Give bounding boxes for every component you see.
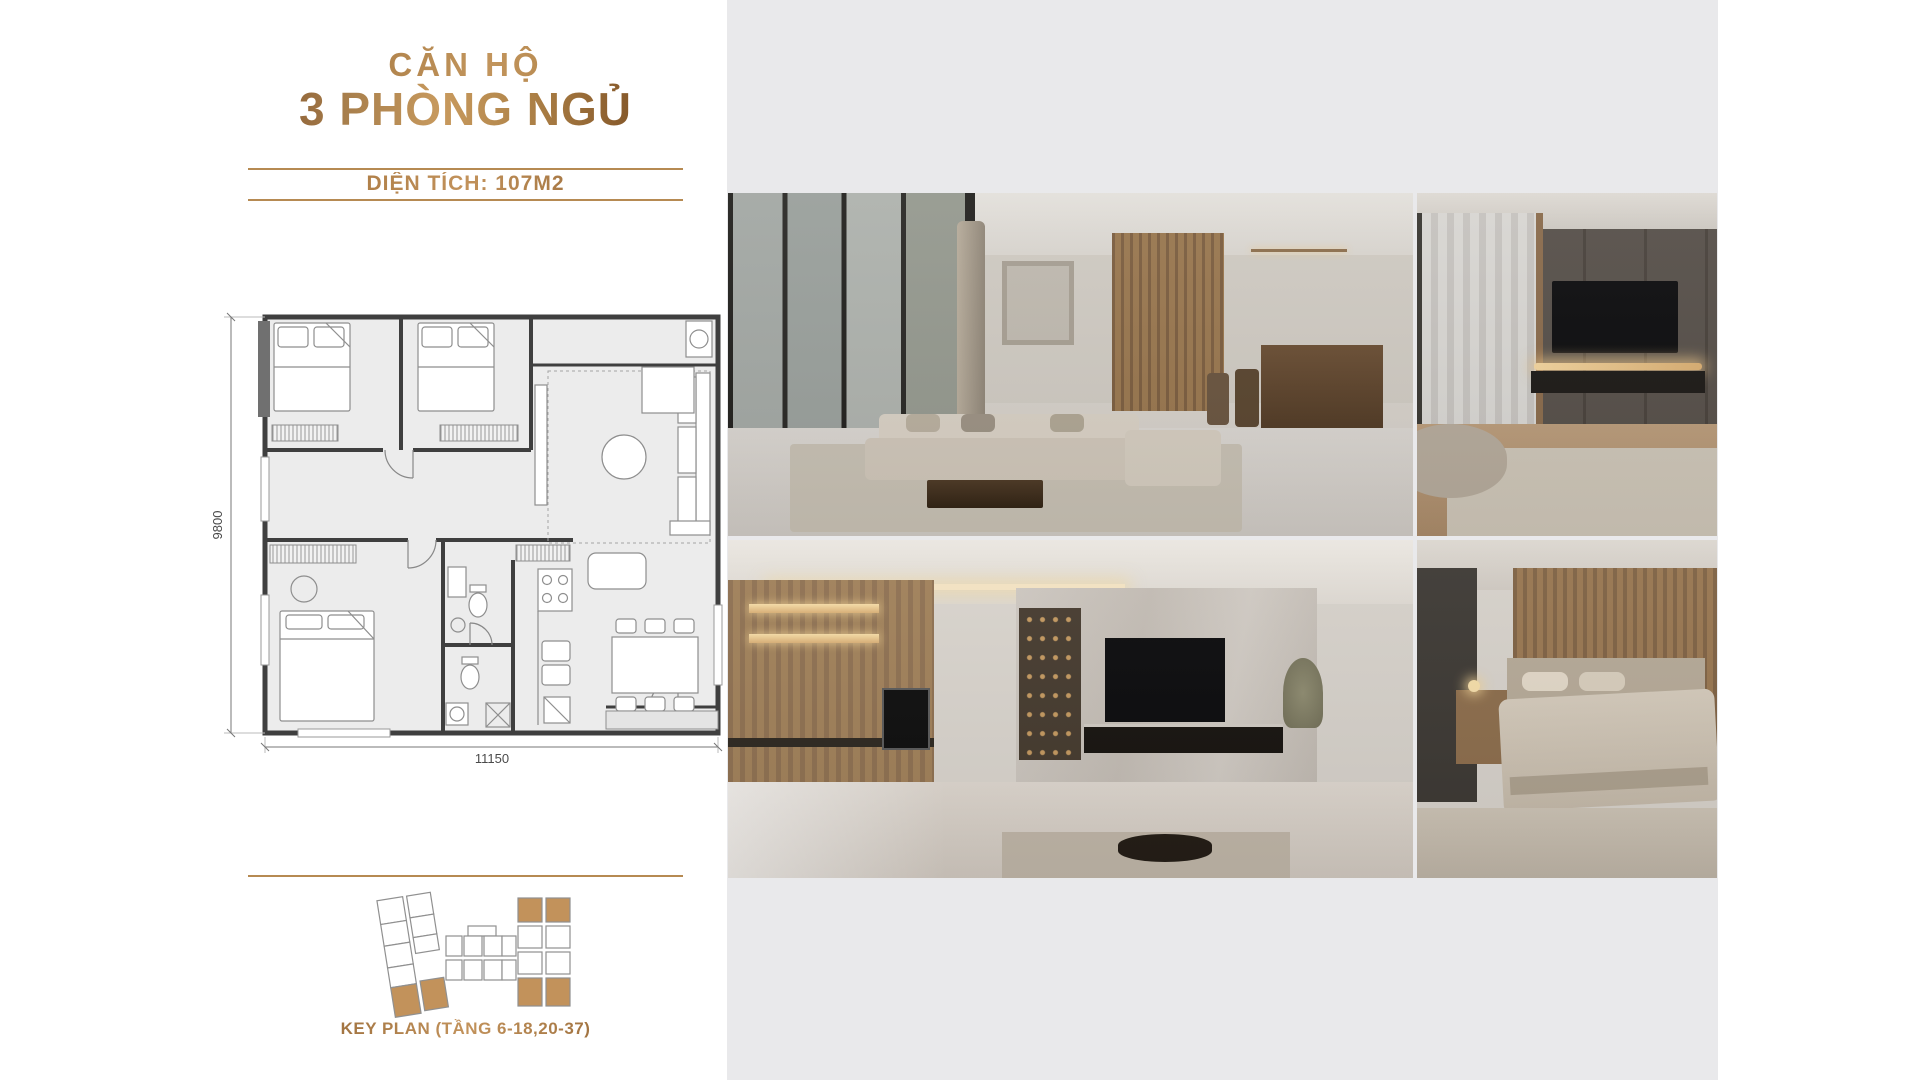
kitchen-lit-shelf <box>749 634 879 643</box>
bedroom-dresser <box>1456 690 1510 764</box>
living-dining-chair <box>1235 369 1259 427</box>
kitchen-ceiling <box>728 540 1413 604</box>
keyplan-caption: KEY PLAN (TẦNG 6-18,20-37) <box>248 1019 683 1039</box>
living-wall-art <box>1002 261 1074 345</box>
bedroom-headboard <box>1507 658 1705 700</box>
keyplan-right-wing <box>518 898 570 1006</box>
keyplan-left-wing <box>377 892 449 1017</box>
kitchen-cabinets <box>728 580 934 784</box>
living-ceiling <box>728 193 1413 255</box>
photo-living-room <box>728 193 1413 536</box>
floor-plan-drawing: 9800 11150 <box>208 305 723 767</box>
area-label: DIỆN TÍCH: 107M2 <box>248 172 683 196</box>
living-floor <box>728 428 1413 536</box>
living-sofa-pillow <box>1050 414 1084 432</box>
living-back-wall <box>975 233 1413 403</box>
kitchen-rug <box>1002 832 1290 878</box>
bedroom-wood-slat-wall <box>1513 568 1717 754</box>
divider-under-area <box>248 199 683 201</box>
kitchen-tv <box>1105 638 1225 722</box>
lounge-ceiling <box>1417 193 1717 229</box>
kitchen-plant <box>1283 658 1323 728</box>
living-rug <box>790 444 1242 532</box>
living-sofa-pillow <box>906 414 940 432</box>
bedroom-duvet <box>1498 688 1717 811</box>
kitchen-floor-reflection <box>728 782 947 878</box>
living-wood-slat-panel <box>1112 233 1224 411</box>
lounge-shelf-light <box>1534 363 1702 370</box>
kitchen-oven <box>882 688 930 750</box>
kitchen-marble-tv-wall <box>1016 588 1317 790</box>
photo-bedroom <box>1417 540 1717 878</box>
kitchen-low-console <box>1084 724 1283 753</box>
page-title-line2: 3 PHÒNG NGỦ <box>228 82 703 136</box>
lounge-sheer-curtain <box>1417 213 1543 437</box>
lounge-panel-wall <box>1525 211 1717 458</box>
lounge-ottoman <box>1417 424 1507 498</box>
kitchen-cove-light <box>769 584 1125 590</box>
photo-tv-lounge <box>1417 193 1717 536</box>
keyplan-center-bar <box>446 926 516 980</box>
kitchen-coffee-table <box>1118 834 1212 862</box>
bedroom-ceiling <box>1417 540 1717 590</box>
kitchen-display-bottles <box>1023 612 1078 756</box>
living-curtain <box>957 221 985 473</box>
living-dining-chair <box>1207 373 1229 425</box>
living-kitchen-island <box>1261 345 1383 437</box>
living-sofa-pillow <box>961 414 995 432</box>
kitchen-counter <box>728 738 934 747</box>
bedroom-pillow <box>1522 672 1568 691</box>
kitchen-display-cabinet <box>1019 608 1081 760</box>
bedroom-wardrobe-mirror <box>1417 568 1477 802</box>
plan-height-dimension: 9800 <box>210 511 225 540</box>
lounge-wood-floor <box>1417 424 1717 536</box>
bedroom-throw-blanket <box>1510 767 1709 795</box>
living-coffee-table <box>927 480 1043 508</box>
bedroom-lamp <box>1468 680 1480 692</box>
kitchen-hallway <box>934 604 1016 786</box>
kitchen-floor <box>728 782 1413 878</box>
bedroom-carpet <box>1417 808 1717 878</box>
key-plan-drawing <box>360 890 575 1022</box>
lounge-tv <box>1552 281 1678 353</box>
living-sofa-back <box>879 414 1139 448</box>
living-sofa-chaise <box>1125 430 1221 486</box>
page-title-line1: CĂN HỘ <box>248 46 683 84</box>
plan-width-dimension: 11150 <box>475 751 509 766</box>
bedroom-pillow <box>1579 672 1625 691</box>
lounge-rug <box>1447 448 1717 536</box>
living-window-wall <box>728 193 975 485</box>
kitchen-lit-shelf <box>749 604 879 613</box>
divider-top <box>248 168 683 170</box>
living-sofa-seat <box>865 438 1180 480</box>
living-pendant-light <box>1251 249 1347 252</box>
lounge-media-console <box>1531 371 1705 393</box>
divider-above-keyplan <box>248 875 683 877</box>
photo-kitchen-tv-wall <box>728 540 1413 878</box>
photo-grid <box>728 193 1717 878</box>
